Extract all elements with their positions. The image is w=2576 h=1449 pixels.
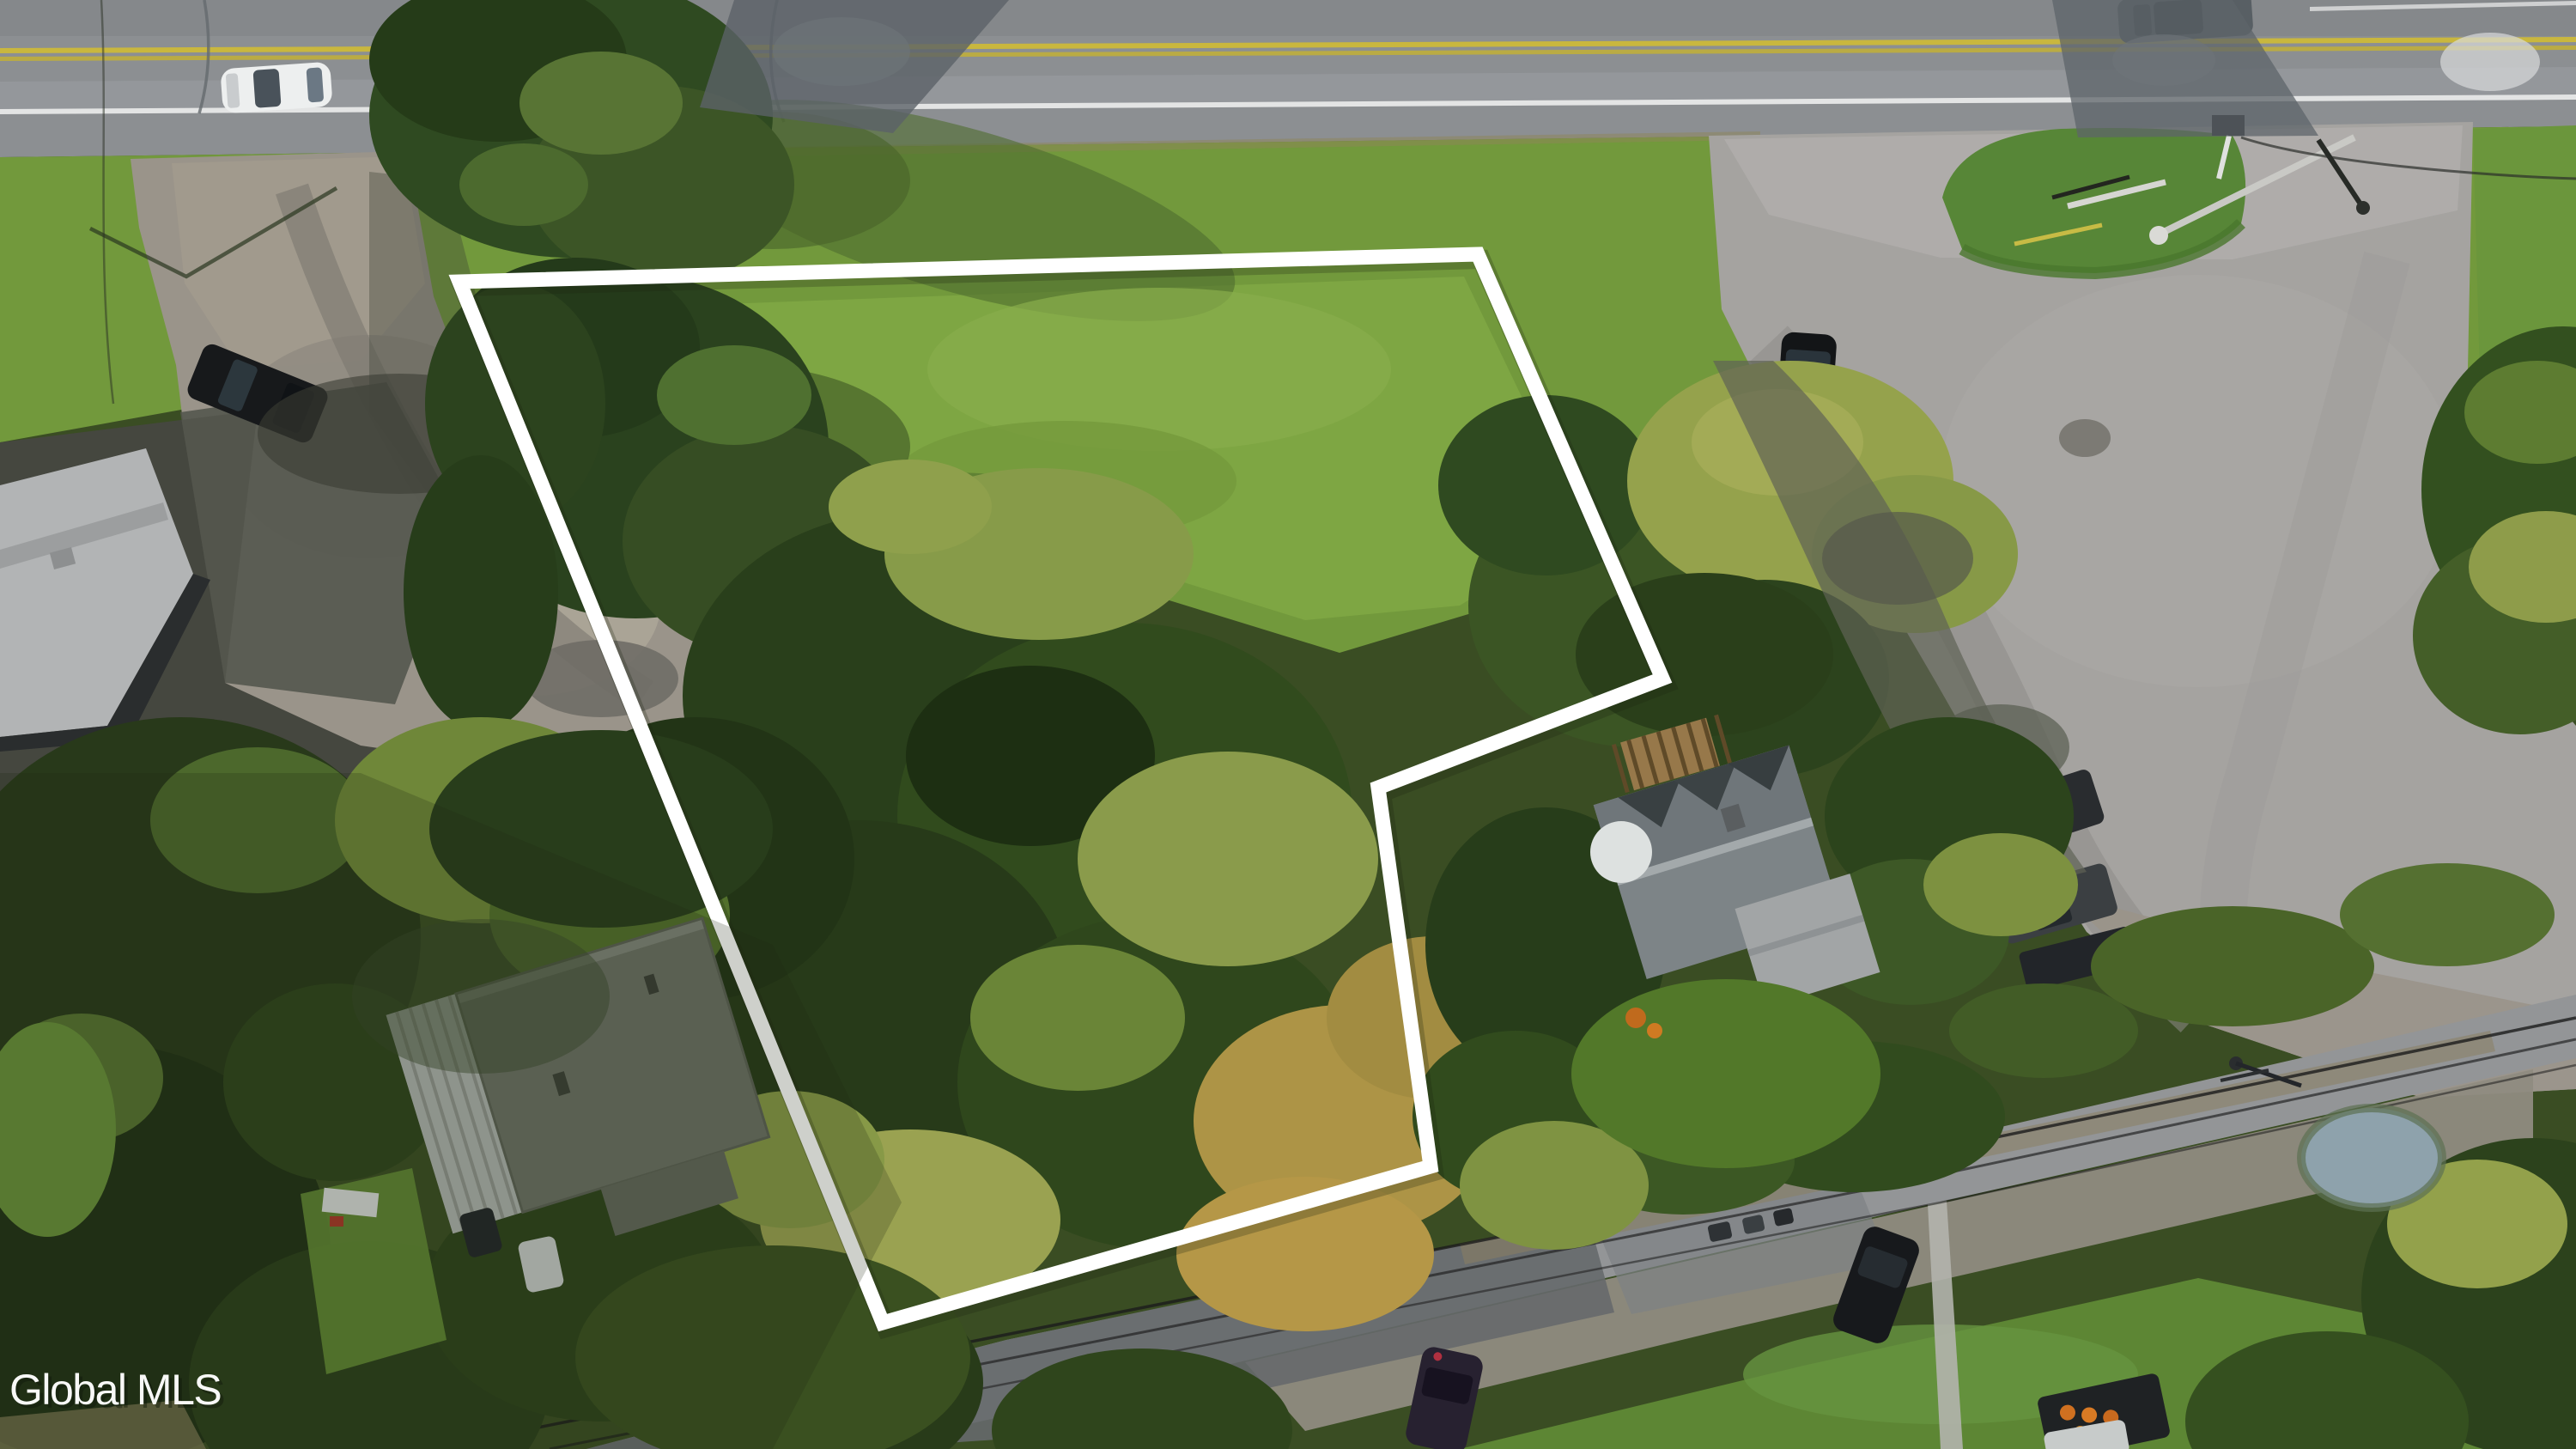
- svg-text:Global MLS: Global MLS: [9, 1366, 221, 1414]
